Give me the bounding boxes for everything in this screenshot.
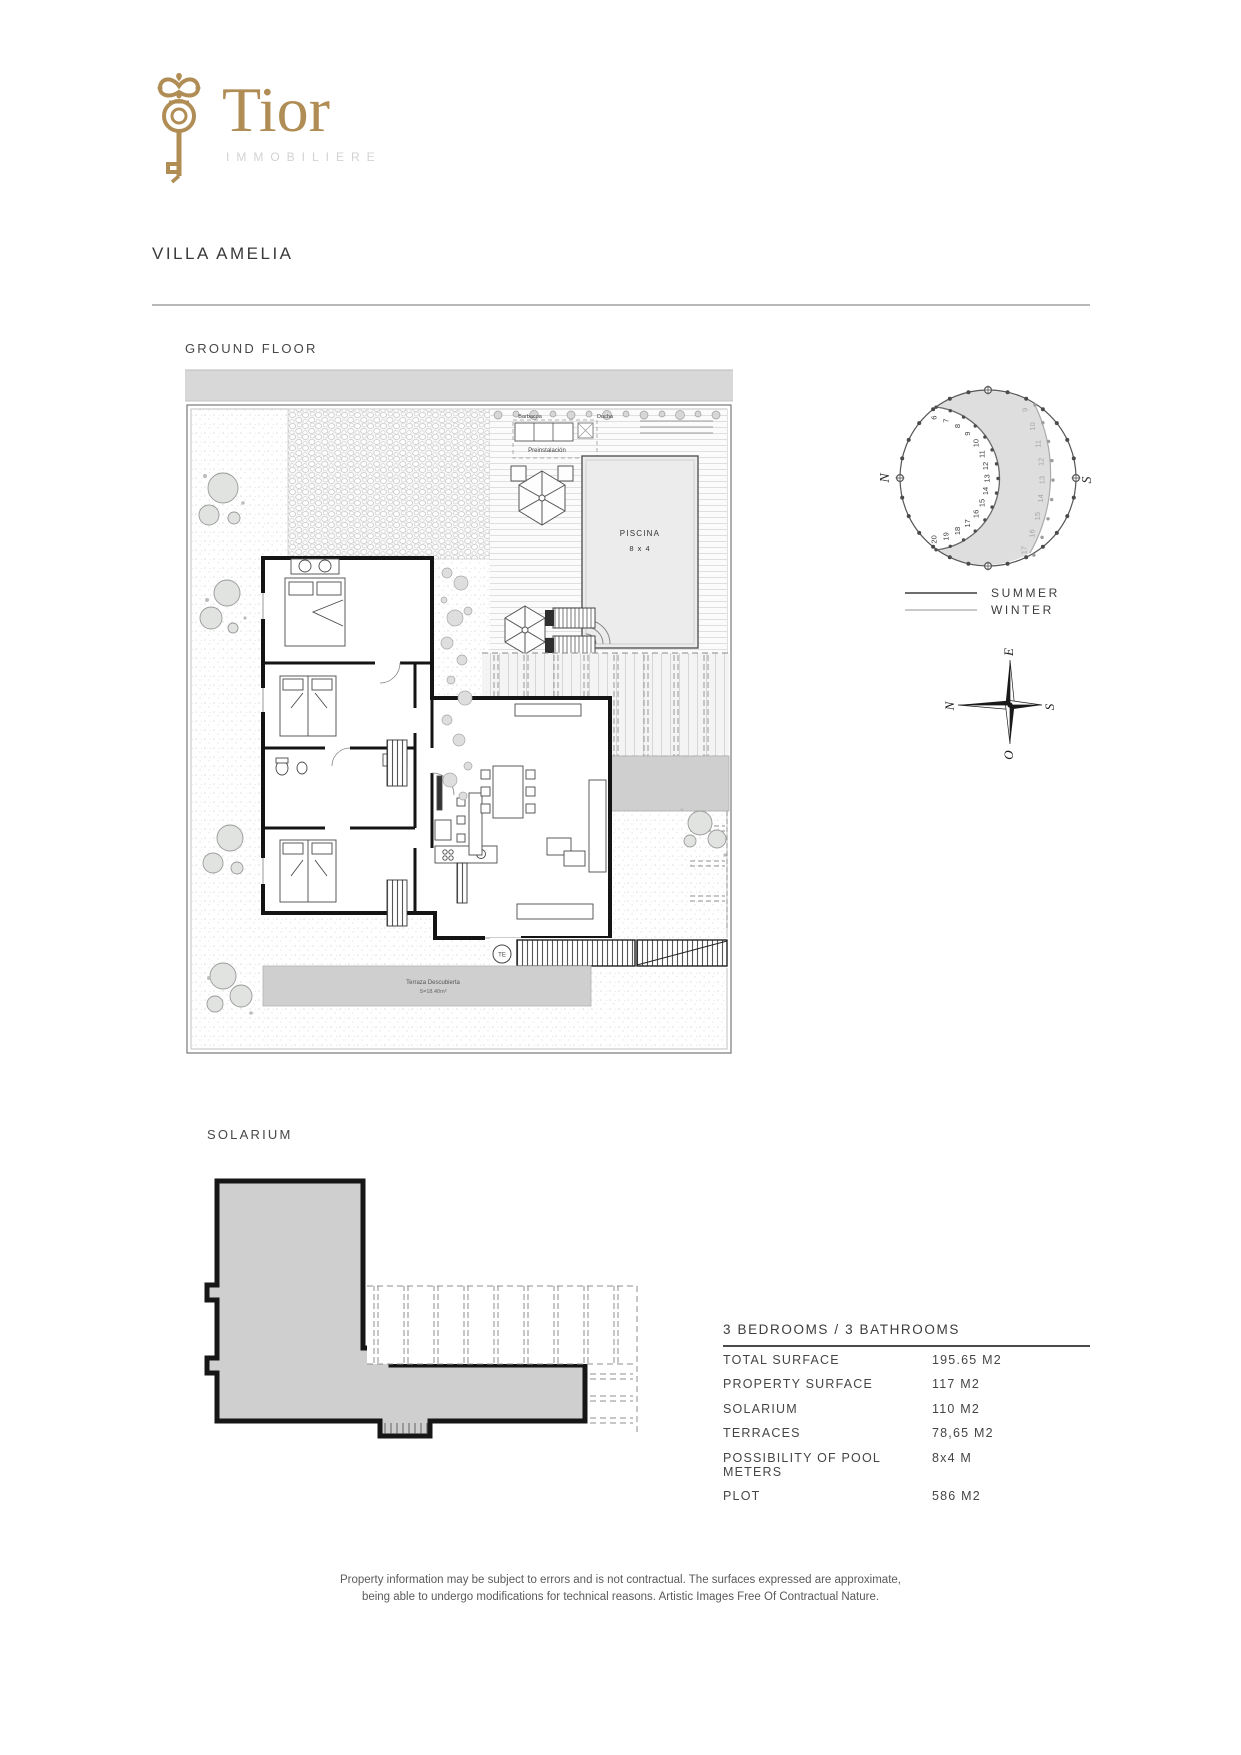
te-label: TE: [498, 953, 506, 959]
spec-value: 110 M2: [932, 1402, 1090, 1416]
terraza-descubierta-area: S=18.40m²: [419, 989, 446, 995]
svg-text:13: 13: [982, 474, 991, 482]
winter-label: WINTER: [991, 603, 1054, 617]
legend-row-winter: WINTER: [905, 601, 1060, 618]
compass-rose: E N S O: [945, 640, 1075, 770]
sun-south-label: S: [1080, 477, 1094, 484]
piscina-label: PISCINA: [620, 529, 660, 538]
terraza-descubierta: [263, 966, 591, 1006]
spec-value: 78,65 M2: [932, 1426, 1090, 1440]
sun-north-label: N: [878, 473, 893, 484]
disclaimer-line2: being able to undergo modifications for …: [0, 1589, 1241, 1606]
table-row: TOTAL SURFACE 195.65 M2: [723, 1347, 1090, 1372]
summer-line-swatch: [905, 592, 977, 594]
svg-text:20: 20: [930, 535, 939, 543]
solarium-label: SOLARIUM: [207, 1127, 293, 1142]
sun-shade: [936, 391, 1051, 565]
compass-star: [958, 660, 1042, 744]
title-divider: [152, 304, 1090, 306]
spec-value: 195.65 M2: [932, 1353, 1090, 1367]
ground-floor-plan: Barbacoa Ducha Preinstalación PISCINA 8 …: [185, 368, 733, 1056]
brochure-page: Tior IMMOBILIERE VILLA AMELIA GROUND FLO…: [0, 0, 1241, 1755]
compass-east-label: E: [1001, 648, 1016, 657]
specs-header: 3 BEDROOMS / 3 BATHROOMS: [723, 1322, 1090, 1347]
spec-label: TERRACES: [723, 1426, 932, 1440]
stairs: [517, 940, 635, 966]
sun-path-diagram: 67891011121314151617181920 9101112131415…: [874, 380, 1094, 590]
preinstalacion-label: Preinstalación: [528, 448, 566, 454]
table-row: POSSIBILITY OF POOL METERS 8x4 M: [723, 1445, 1090, 1484]
svg-text:17: 17: [1020, 546, 1029, 554]
svg-text:15: 15: [1033, 512, 1042, 520]
brand-name: Tior: [222, 78, 382, 142]
disclaimer: Property information may be subject to e…: [0, 1572, 1241, 1606]
table-row: TERRACES 78,65 M2: [723, 1421, 1090, 1446]
disclaimer-line1: Property information may be subject to e…: [0, 1572, 1241, 1589]
spec-label: PROPERTY SURFACE: [723, 1377, 932, 1391]
winter-line-swatch: [905, 609, 977, 611]
spec-label: SOLARIUM: [723, 1402, 932, 1416]
svg-text:16: 16: [971, 510, 980, 518]
sun-legend: SUMMER WINTER: [905, 584, 1060, 618]
road-band: [185, 370, 733, 401]
svg-text:11: 11: [977, 450, 986, 458]
ducha-label: Ducha: [597, 414, 614, 420]
svg-text:12: 12: [981, 462, 990, 470]
brand-logo: Tior IMMOBILIERE: [146, 72, 382, 188]
svg-text:14: 14: [1036, 494, 1045, 502]
svg-text:6: 6: [930, 416, 939, 420]
svg-text:10: 10: [1028, 422, 1037, 430]
solarium-plan: [185, 1178, 655, 1450]
svg-text:8: 8: [953, 424, 962, 428]
svg-text:12: 12: [1037, 458, 1046, 466]
spec-value: 8x4 M: [932, 1451, 1090, 1479]
table-row: PROPERTY SURFACE 117 M2: [723, 1372, 1090, 1397]
page-title: VILLA AMELIA: [152, 244, 294, 264]
compass-west-label: O: [1001, 750, 1016, 760]
driveway: [288, 409, 490, 559]
compass-south-label: S: [1042, 703, 1057, 710]
spec-value: 117 M2: [932, 1377, 1090, 1391]
legend-row-summer: SUMMER: [905, 584, 1060, 601]
brand-subtitle: IMMOBILIERE: [226, 150, 382, 164]
table-row: PLOT 586 M2: [723, 1484, 1090, 1509]
svg-text:11: 11: [1033, 440, 1042, 448]
spec-value: 586 M2: [932, 1489, 1090, 1503]
spec-label: TOTAL SURFACE: [723, 1353, 932, 1367]
svg-text:14: 14: [981, 487, 990, 495]
svg-text:7: 7: [942, 419, 951, 423]
piscina-size-label: 8 x 4: [629, 544, 650, 553]
table-row: SOLARIUM 110 M2: [723, 1396, 1090, 1421]
svg-text:16: 16: [1027, 529, 1036, 537]
barbacoa-label: Barbacoa: [518, 414, 542, 420]
svg-text:10: 10: [971, 439, 980, 447]
svg-text:18: 18: [953, 527, 962, 535]
svg-text:17: 17: [963, 519, 972, 527]
svg-text:15: 15: [977, 499, 986, 507]
spec-label: PLOT: [723, 1489, 932, 1503]
terraza-descubierta-label: Terraza Descubierta: [406, 980, 460, 986]
svg-text:13: 13: [1037, 476, 1046, 484]
svg-text:9: 9: [963, 432, 972, 436]
key-icon: [146, 72, 212, 188]
specs-table: 3 BEDROOMS / 3 BATHROOMS TOTAL SURFACE 1…: [723, 1322, 1090, 1508]
spec-label: POSSIBILITY OF POOL METERS: [723, 1451, 932, 1479]
barbecue-counter: [515, 423, 573, 441]
svg-text:9: 9: [1021, 408, 1030, 412]
svg-text:19: 19: [942, 532, 951, 540]
summer-label: SUMMER: [991, 586, 1060, 600]
compass-north-label: N: [945, 700, 957, 711]
ground-floor-label: GROUND FLOOR: [185, 341, 318, 356]
